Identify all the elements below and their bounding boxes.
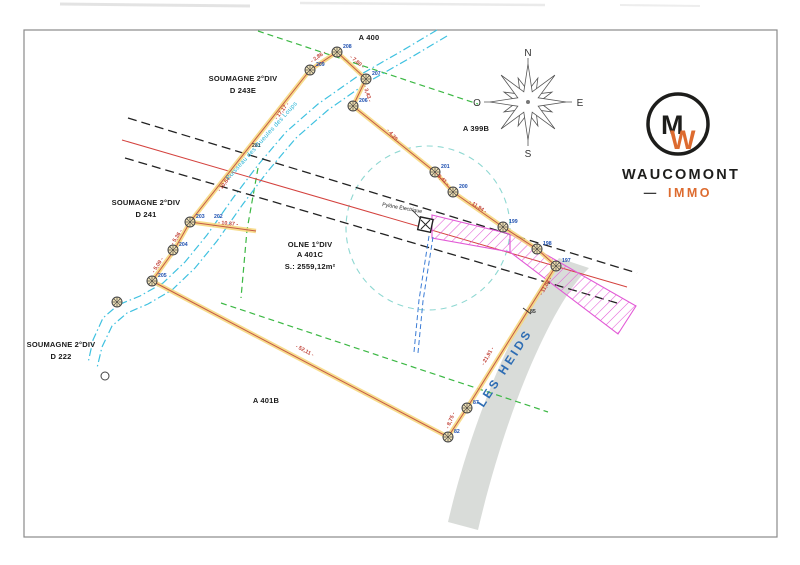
road-les-heids [448,258,589,530]
survey-point-number: 200 [459,184,468,190]
logo-monogram-w: W [670,125,696,155]
electric-line-left [414,236,429,352]
compass-rose: N S O E [473,48,584,160]
corridor-dashed-line-upper [128,118,637,273]
survey-point-number: 199 [509,219,518,225]
corridor-dashed-line-lower [125,158,617,303]
compass-letter-e: E [577,98,584,109]
survey-point-marker: 209 [305,62,325,75]
compass-letter-o: O [473,98,481,109]
survey-point-marker [112,297,122,307]
measurement-label: - 11,94 - [468,199,488,215]
label-soumagne-243e-line2: D 243E [230,86,256,95]
label-soumagne-241-line1: SOUMAGNE 2°DIV [112,198,181,207]
waucomont-logo: M W WAUCOMONT — IMMO [622,94,740,200]
stream-name-label: Ruisseau des Gueules des Loups [225,100,299,181]
spring-symbol [101,372,109,380]
servitude-band-west [432,215,510,252]
extra-point-label: 85 [530,309,536,315]
survey-plan-canvas: Pylône Électrique 2092082072062012001991… [0,0,800,565]
compass-letter-s: S [525,149,532,160]
label-soumagne-243e-line1: SOUMAGNE 2°DIV [209,74,278,83]
label-a400: A 400 [359,33,380,42]
survey-point-number: 82 [454,429,460,435]
label-soumagne-222-line1: SOUMAGNE 2°DIV [27,340,96,349]
logo-immo-text: IMMO [668,186,712,200]
survey-point-number: 198 [543,241,552,247]
survey-point-number: 207 [372,71,381,77]
scan-artifacts [60,3,700,6]
pylon-group: Pylône Électrique [382,201,433,232]
survey-point-number: 209 [316,62,325,68]
survey-point-number: 208 [343,44,352,50]
electric-line-underground [414,236,433,353]
survey-point-number: 203 [196,214,205,220]
survey-point-number: 205 [158,273,167,279]
page-border-frame [24,30,777,537]
survey-point-number: 204 [179,242,188,248]
compass-letter-n: N [524,48,531,59]
label-olne-area: S.: 2559,12m² [285,262,336,271]
label-olne-line1: OLNE 1°DIV [288,240,333,249]
logo-dash: — [644,186,657,200]
pylon-label: Pylône Électrique [382,201,423,215]
label-soumagne-222-line2: D 222 [50,352,71,361]
extra-point-label: 202 [214,214,223,220]
measurement-label: - 8,41 - [433,171,450,187]
label-soumagne-241-line2: D 241 [135,210,156,219]
survey-point-number: 197 [562,258,571,264]
label-a399b: A 399B [463,124,490,133]
logo-brand-name: WAUCOMONT [622,167,740,183]
label-olne-line2: A 401C [297,250,324,259]
label-a401b: A 401B [253,396,280,405]
compass-center [526,100,530,104]
survey-point-number: 201 [441,164,450,170]
